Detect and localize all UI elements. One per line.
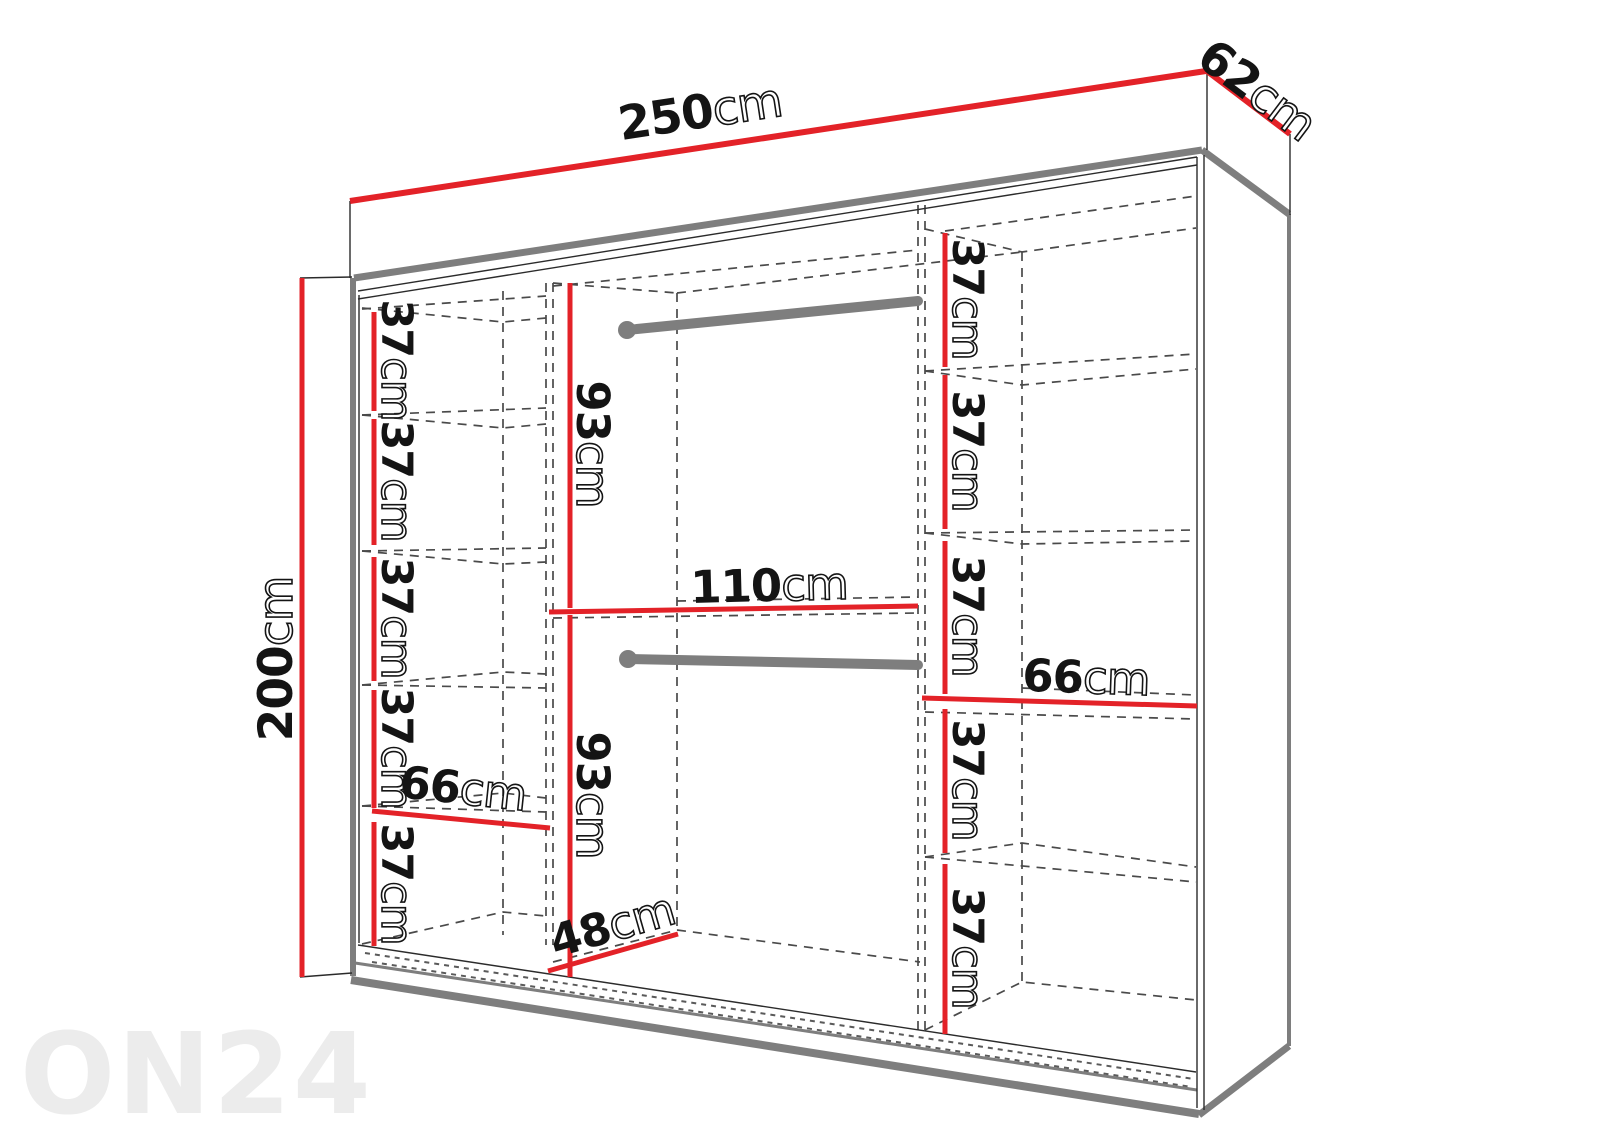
- label-overall-depth: 62cm: [1187, 28, 1326, 152]
- label-right-shelf-4: 37cm: [942, 719, 992, 840]
- rod-end-cap-top-icon: [618, 321, 636, 339]
- label-middle-bottom-93: 93cm: [567, 731, 620, 858]
- dimension-labels: 250cm 62cm 200cm 37cm 37cm 37cm 37cm 37c…: [249, 28, 1327, 1009]
- plinth-top-edge: [355, 963, 1197, 1090]
- label-left-shelf-3: 37cm: [371, 557, 421, 678]
- label-middle-width-110: 110cm: [690, 556, 849, 613]
- label-left-shelf-1: 37cm: [371, 299, 421, 420]
- dimension-lines: [302, 71, 1290, 1034]
- label-overall-height: 200cm: [249, 577, 304, 742]
- label-right-shelf-1: 37cm: [942, 238, 992, 359]
- hanging-rod-bottom-icon: [628, 659, 918, 665]
- label-left-shelf-2: 37cm: [371, 420, 421, 541]
- diagram-canvas: ON24: [0, 0, 1600, 1145]
- top-right-edge: [1202, 150, 1289, 214]
- label-right-width-66: 66cm: [1022, 648, 1151, 705]
- carcass-gray-edges: [351, 150, 1289, 1115]
- label-right-shelf-2: 37cm: [942, 390, 992, 511]
- label-left-width-66: 66cm: [397, 755, 529, 821]
- bottom-right-edge: [1199, 1046, 1289, 1115]
- wardrobe-dimension-diagram: ON24: [0, 0, 1600, 1145]
- plinth-bottom-edge: [351, 980, 1199, 1114]
- top-front-edge: [354, 150, 1202, 278]
- label-middle-top-93: 93cm: [567, 380, 620, 507]
- rod-end-cap-bottom-icon: [619, 650, 637, 668]
- label-right-shelf-3: 37cm: [942, 555, 992, 676]
- label-right-shelf-5: 37cm: [942, 887, 992, 1008]
- hanging-rod-top-icon: [627, 301, 918, 330]
- watermark: ON24: [20, 1010, 373, 1140]
- label-left-shelf-5: 37cm: [371, 823, 421, 944]
- interior-dashed-lines: [362, 196, 1196, 1087]
